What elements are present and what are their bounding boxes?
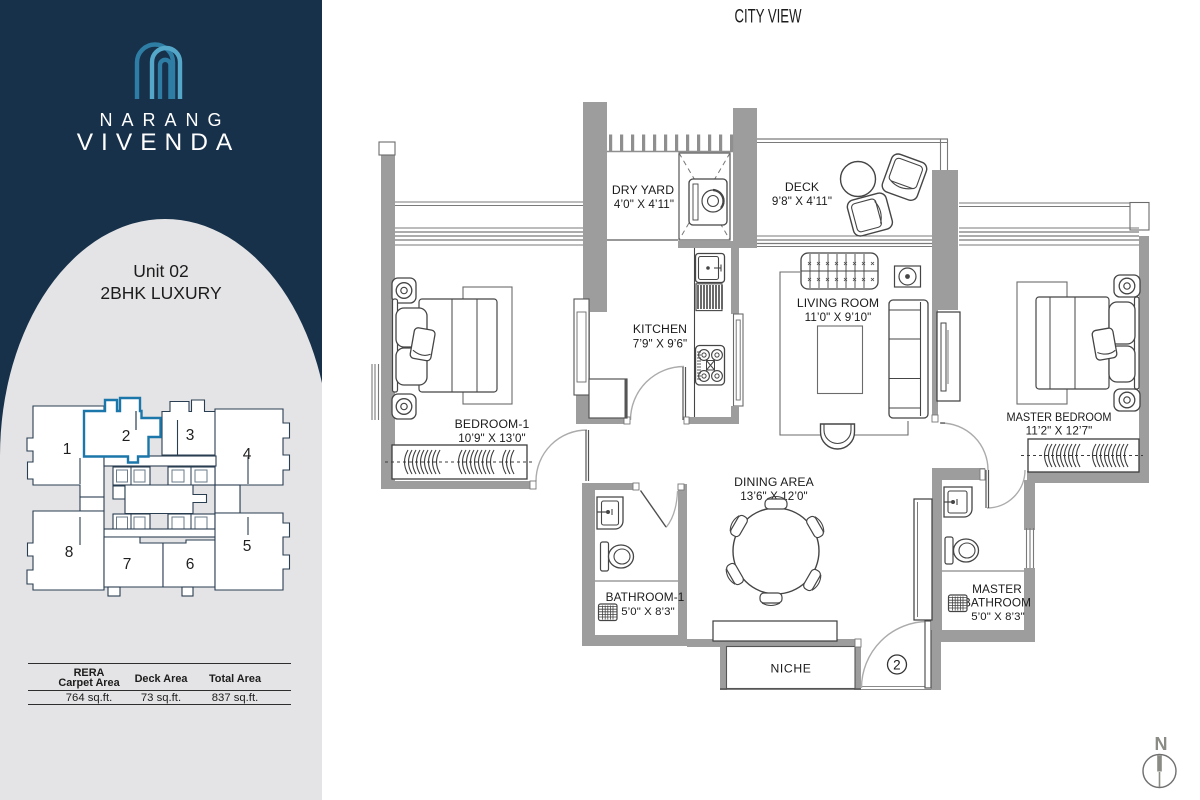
svg-text:5’0" X 8’3": 5’0" X 8’3" <box>971 611 1025 623</box>
svg-text:MASTER BEDROOM: MASTER BEDROOM <box>1007 410 1112 424</box>
svg-text:BATHROOM: BATHROOM <box>963 596 1031 610</box>
svg-text:2: 2 <box>893 658 901 673</box>
svg-text:N: N <box>1155 734 1168 754</box>
svg-text:NICHE: NICHE <box>771 662 812 676</box>
svg-text:10’9" X 13’0": 10’9" X 13’0" <box>458 432 526 445</box>
svg-text:9’8" X 4’11": 9’8" X 4’11" <box>772 195 832 208</box>
svg-text:11’2" X 12’7": 11’2" X 12’7" <box>1026 425 1093 438</box>
svg-text:DINING AREA: DINING AREA <box>734 475 814 489</box>
svg-text:DRY YARD: DRY YARD <box>612 183 674 197</box>
svg-text:7’9" X 9’6": 7’9" X 9’6" <box>633 338 687 351</box>
svg-text:LIVING ROOM: LIVING ROOM <box>797 296 879 310</box>
svg-text:BATHROOM-1: BATHROOM-1 <box>606 590 685 604</box>
svg-text:4’0" X 4’11": 4’0" X 4’11" <box>614 198 674 211</box>
svg-text:MASTER: MASTER <box>972 582 1022 596</box>
svg-text:DECK: DECK <box>785 180 819 194</box>
svg-text:BEDROOM-1: BEDROOM-1 <box>455 417 530 431</box>
svg-text:5’0" X 8’3": 5’0" X 8’3" <box>621 606 675 618</box>
svg-text:11’0" X 9’10": 11’0" X 9’10" <box>805 311 872 324</box>
svg-text:KITCHEN: KITCHEN <box>633 322 687 336</box>
svg-text:CITY VIEW: CITY VIEW <box>735 6 802 27</box>
